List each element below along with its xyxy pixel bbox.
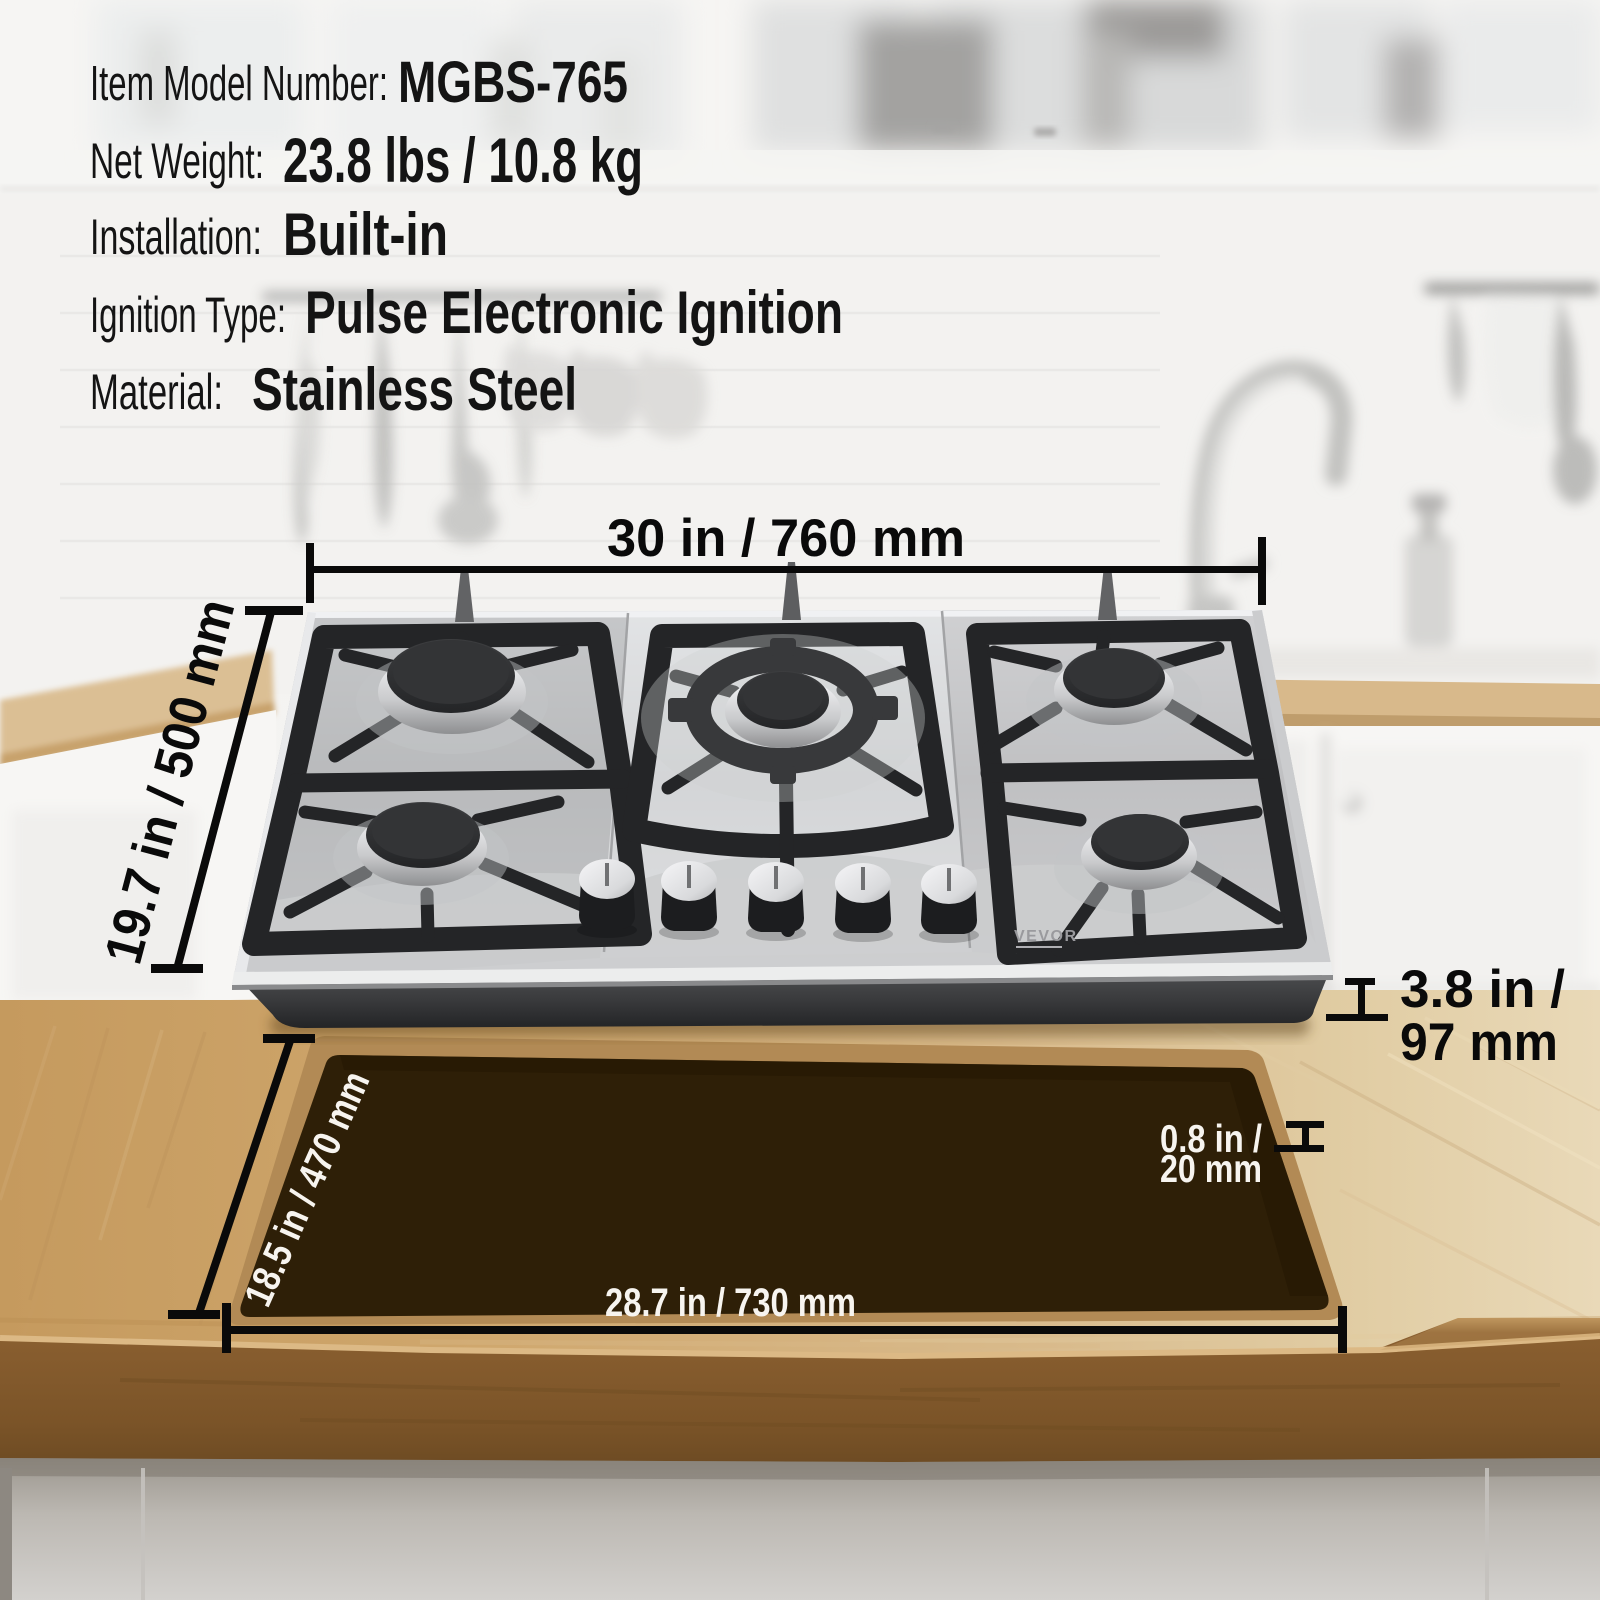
svg-text:Net Weight:: Net Weight: bbox=[90, 133, 264, 189]
svg-text:Stainless Steel: Stainless Steel bbox=[252, 356, 577, 423]
svg-text:Pulse Electronic Ignition: Pulse Electronic Ignition bbox=[305, 279, 843, 346]
svg-text:Ignition Type:: Ignition Type: bbox=[90, 287, 286, 343]
svg-text:28.7 in / 730 mm: 28.7 in / 730 mm bbox=[605, 1281, 856, 1325]
svg-text:VEVOR: VEVOR bbox=[1014, 928, 1078, 945]
svg-text:23.8 lbs / 10.8 kg: 23.8 lbs / 10.8 kg bbox=[283, 126, 643, 196]
svg-text:Built-in: Built-in bbox=[283, 201, 448, 268]
svg-text:20 mm: 20 mm bbox=[1160, 1148, 1262, 1191]
svg-text:Material:: Material: bbox=[90, 364, 223, 420]
svg-text:Installation:: Installation: bbox=[90, 209, 262, 265]
svg-text:97 mm: 97 mm bbox=[1400, 1013, 1558, 1072]
svg-text:30 in / 760 mm: 30 in / 760 mm bbox=[607, 509, 965, 568]
svg-text:Item Model Number:: Item Model Number: bbox=[90, 57, 388, 111]
svg-text:3.8 in /: 3.8 in / bbox=[1400, 960, 1565, 1019]
svg-text:MGBS-765: MGBS-765 bbox=[398, 50, 628, 115]
